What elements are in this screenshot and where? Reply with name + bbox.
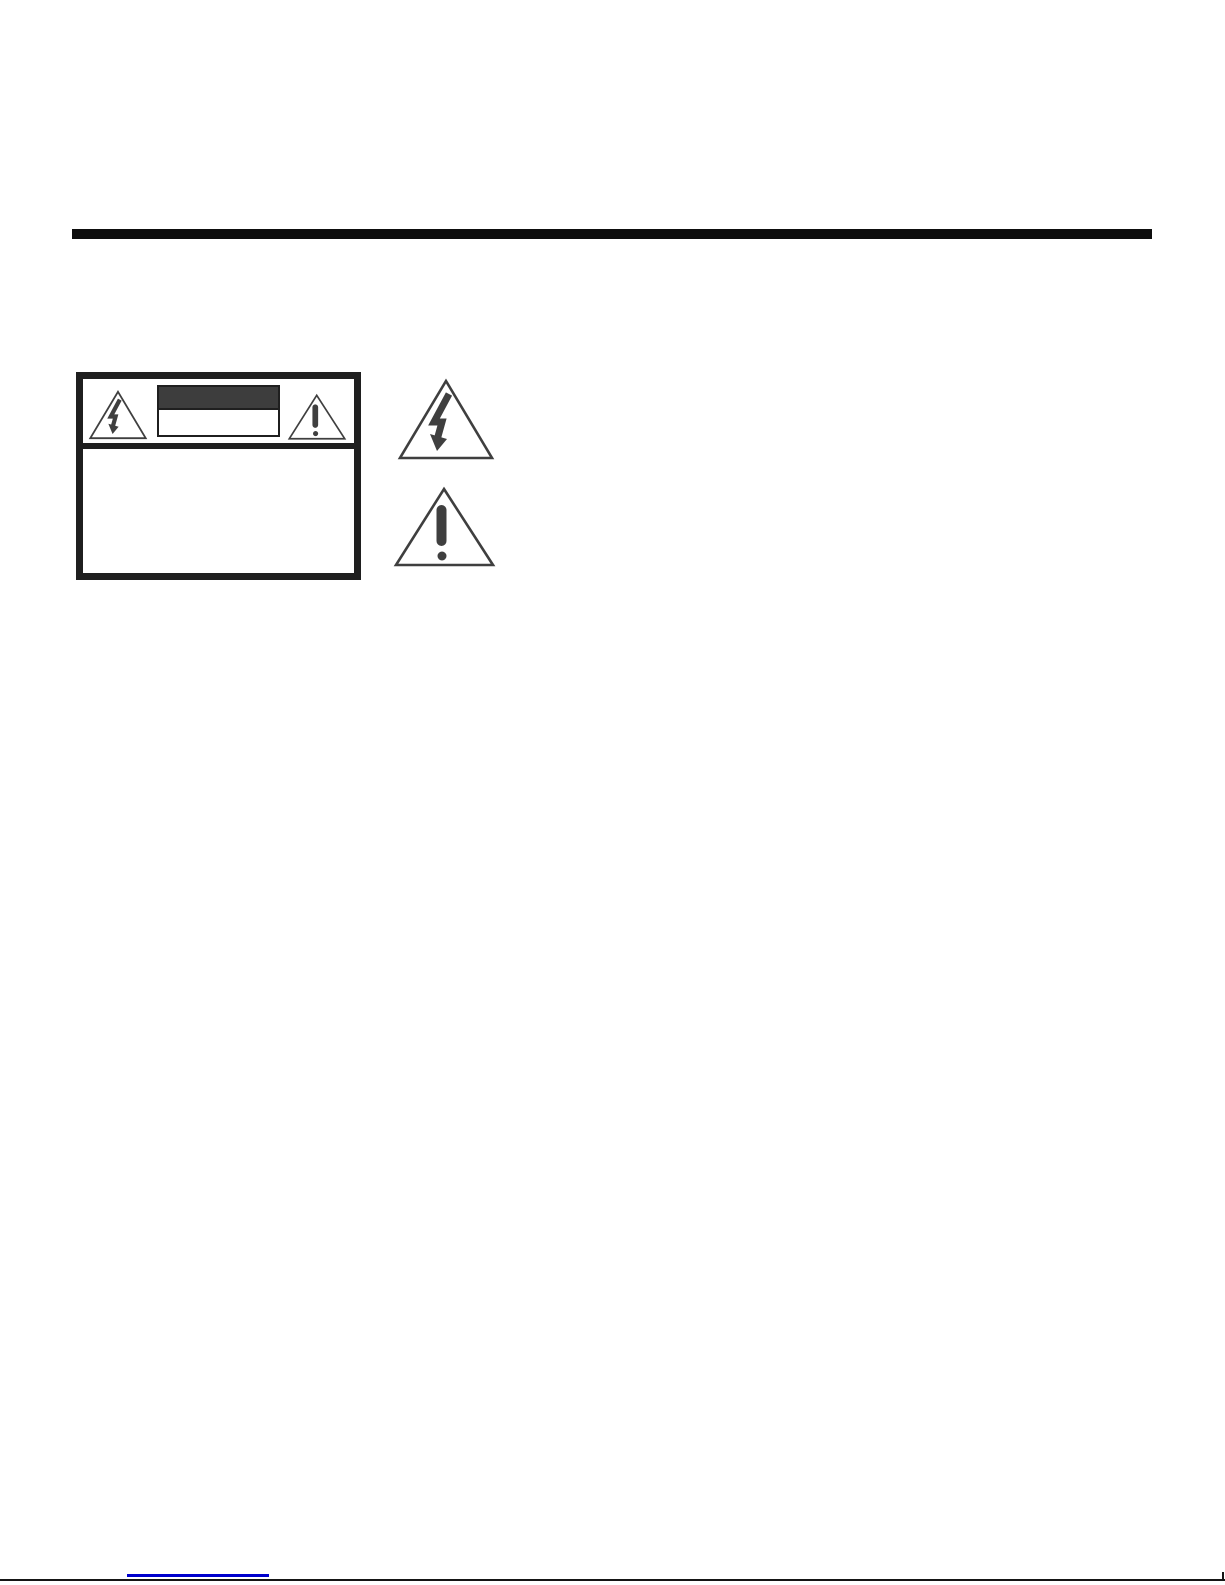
manual-page [0, 0, 1225, 1585]
alert-triangle-icon [287, 392, 347, 442]
footer-link[interactable] [127, 1574, 269, 1577]
safety-warning-label [76, 372, 361, 580]
exclamation-mark-in-triangle-icon [392, 486, 497, 568]
caution-band [157, 385, 280, 437]
page-corner-tick [1222, 1572, 1224, 1581]
electric-shock-triangle-icon [88, 390, 148, 440]
page-bottom-edge [0, 1579, 1225, 1581]
caution-band-message-area [159, 410, 278, 435]
warning-label-body [83, 449, 354, 573]
warning-label-header [83, 379, 354, 449]
lightning-bolt-in-triangle-icon [397, 378, 495, 461]
section-rule [72, 229, 1152, 239]
caution-band-title-area [159, 387, 278, 410]
